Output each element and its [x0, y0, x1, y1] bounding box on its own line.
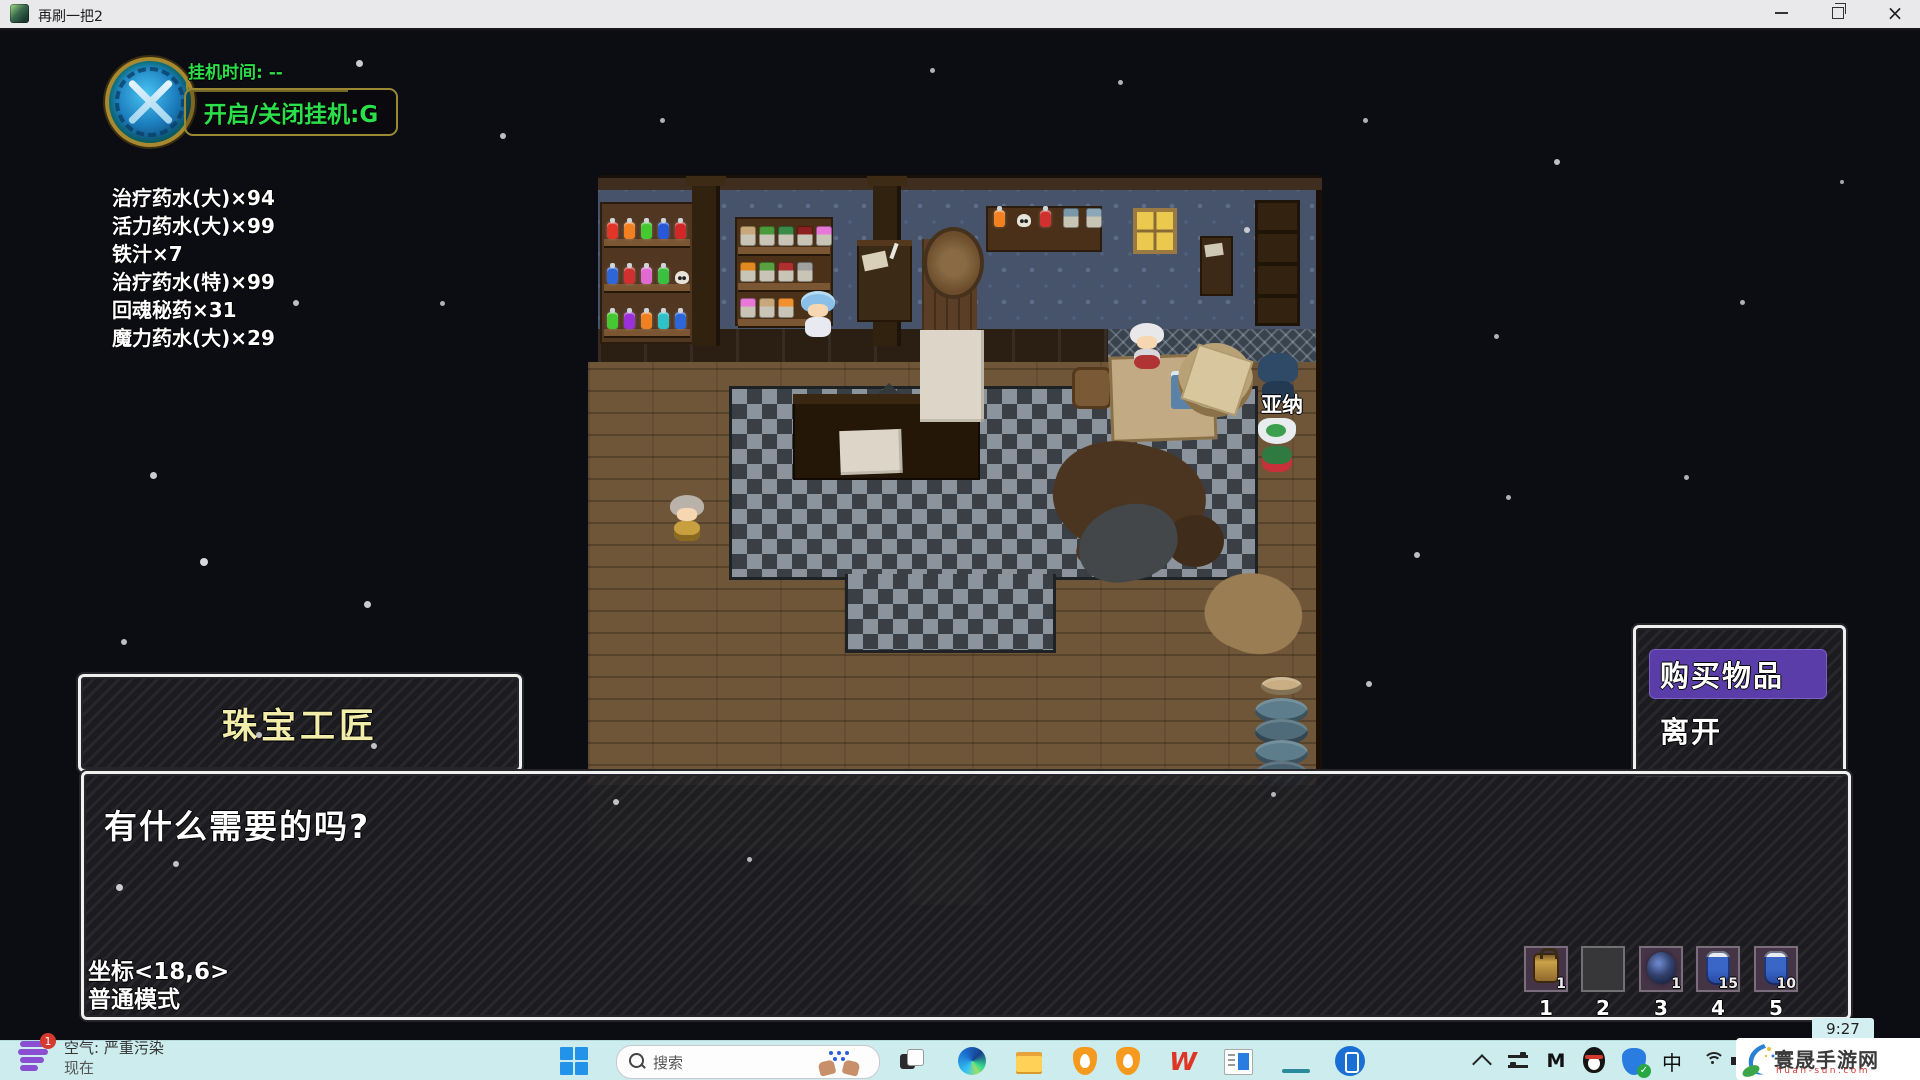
- npc-shopkeeper[interactable]: [798, 291, 838, 343]
- snow-particle: [660, 118, 665, 123]
- jar-item: [759, 226, 775, 246]
- mode-label: 普通模式: [88, 980, 180, 1014]
- snow-particle: [1684, 475, 1689, 480]
- search-highlight-image: [813, 1049, 869, 1075]
- potion-bottle: [994, 210, 1005, 227]
- shelf-board: [604, 329, 690, 336]
- weather-subline: 现在: [64, 1057, 94, 1078]
- item-count: 10: [1777, 976, 1796, 992]
- hotbar-slot-4[interactable]: 15: [1696, 946, 1740, 992]
- edge-browser-icon[interactable]: [956, 1046, 988, 1076]
- skull-item: [1017, 214, 1031, 227]
- afk-toggle-button[interactable]: 开启/关闭挂机:G: [184, 88, 398, 136]
- notification-badge: 1: [40, 1033, 56, 1049]
- snow-particle: [1554, 159, 1560, 165]
- afk-emblem-icon[interactable]: [105, 57, 195, 147]
- counter-cloth: [839, 429, 902, 475]
- yellow-window: [1133, 208, 1177, 254]
- snow-particle: [440, 301, 445, 306]
- close-button[interactable]: ×: [1872, 0, 1918, 26]
- snow-particle: [930, 68, 935, 73]
- start-button[interactable]: [560, 1047, 590, 1075]
- npc-body: [1134, 349, 1160, 369]
- shelf-top-right: [986, 206, 1102, 252]
- snow-particle: [1494, 334, 1499, 339]
- window-title: 再刷一把2: [38, 6, 103, 26]
- jar-item: [740, 262, 756, 282]
- npc-whitehair[interactable]: [1127, 323, 1167, 375]
- inventory-item: 回魂秘药×31: [112, 296, 275, 324]
- potion-bottle: [658, 267, 669, 284]
- carpet-extension: [845, 574, 1056, 653]
- hotbar-key: 1: [1524, 996, 1568, 1020]
- wps-letter: W: [1169, 1047, 1195, 1076]
- snow-particle: [1244, 227, 1250, 233]
- snow-particle: [364, 601, 371, 608]
- npc-body: [805, 317, 831, 337]
- task-view-icon[interactable]: [897, 1046, 929, 1076]
- npc-hair-green: [1266, 424, 1286, 437]
- pillar: [692, 184, 720, 346]
- shelf-board: [738, 247, 830, 254]
- npc-green-warrior[interactable]: [1256, 418, 1296, 488]
- cabinet: [1255, 200, 1300, 326]
- search-box[interactable]: 搜索: [616, 1045, 880, 1079]
- jar-item: [740, 298, 756, 318]
- jar-item: [778, 298, 794, 318]
- snow-particle: [256, 732, 262, 738]
- choice-leave[interactable]: 离开: [1650, 706, 1826, 754]
- snow-particle: [500, 133, 506, 139]
- hotbar-slot-3[interactable]: 1: [1639, 946, 1683, 992]
- npc-body: [1262, 446, 1292, 472]
- potion-bottle: [624, 222, 635, 239]
- player-body: [674, 521, 700, 541]
- potion-bottle: [607, 267, 618, 284]
- m-tray-icon[interactable]: M: [1540, 1046, 1572, 1076]
- player-character[interactable]: [667, 495, 707, 547]
- stool: [1072, 367, 1112, 409]
- jar-item: [1063, 208, 1079, 228]
- potion-bottle: [607, 222, 618, 239]
- inventory-item: 魔力药水(大)×29: [112, 324, 275, 352]
- snow-particle: [1740, 300, 1745, 305]
- shelf-board: [738, 283, 830, 290]
- security-tray-icon[interactable]: [1618, 1046, 1650, 1076]
- window-titlebar: 再刷一把2 ×: [0, 0, 1920, 30]
- hotbar-key: 3: [1639, 996, 1683, 1020]
- inventory-item: 活力药水(大)×99: [112, 212, 275, 240]
- potion-bottle: [641, 222, 652, 239]
- active-app-indicator: [1282, 1069, 1310, 1073]
- minimize-button[interactable]: [1758, 0, 1804, 26]
- restore-icon: [1832, 7, 1844, 19]
- jar-item: [740, 226, 756, 246]
- potion-bottle: [624, 312, 635, 329]
- potion-bottle: [641, 312, 652, 329]
- snow-particle: [121, 639, 127, 645]
- inventory-list: 治疗药水(大)×94 活力药水(大)×99 铁汁×7 治疗药水(特)×99 回魂…: [112, 184, 275, 352]
- snow-particle: [173, 861, 179, 867]
- watermark: 寰晟手游网 huan-sun.com: [1770, 1038, 1920, 1080]
- restore-button[interactable]: [1815, 0, 1861, 26]
- jar-item: [778, 262, 794, 282]
- hotbar-slot-1[interactable]: 1: [1524, 946, 1568, 992]
- chevron-up-icon: [1472, 1054, 1492, 1074]
- snow-particle: [613, 799, 619, 805]
- player-face: [677, 508, 697, 521]
- pillar-cap: [686, 176, 726, 186]
- weather-headline: 空气: 严重污染: [64, 1037, 164, 1058]
- jar-item: [797, 262, 813, 282]
- huorong-shield-icon[interactable]: [1069, 1046, 1101, 1076]
- pillar-cap: [867, 176, 907, 186]
- desktop: 再刷一把2 ×: [0, 0, 1920, 1080]
- wps-office-icon[interactable]: W: [1166, 1046, 1198, 1076]
- npc-hood: [1258, 353, 1298, 383]
- huorong-shield-icon-2[interactable]: [1112, 1046, 1144, 1076]
- potion-bottle: [675, 312, 686, 329]
- minimize-icon: [1775, 12, 1788, 14]
- snow-particle: [1366, 681, 1372, 687]
- jar-item: [1086, 208, 1102, 228]
- shield-check-icon: [1622, 1048, 1646, 1075]
- potion-bottle: [624, 267, 635, 284]
- reader-window: [1224, 1049, 1253, 1075]
- hotbar-key: 2: [1581, 996, 1625, 1020]
- small-shelf: [1200, 236, 1233, 296]
- hotbar-key: 5: [1754, 996, 1798, 1020]
- jar-item: [778, 226, 794, 246]
- weather-widget[interactable]: 1 空气: 严重污染 现在: [14, 1035, 234, 1080]
- snow-particle: [1840, 180, 1844, 184]
- pot: [1261, 677, 1302, 695]
- close-icon: ×: [1887, 3, 1904, 23]
- qq-tray-icon[interactable]: [1578, 1046, 1610, 1076]
- potion-bottle: [1040, 210, 1051, 227]
- shield-flame: [1073, 1047, 1097, 1075]
- search-icon: [629, 1053, 644, 1068]
- dialog-message: 有什么需要的吗?: [104, 800, 370, 848]
- tray-expand-chevron[interactable]: [1466, 1046, 1498, 1076]
- ime-indicator[interactable]: 中: [1656, 1046, 1688, 1076]
- mixer-tray-icon[interactable]: [1502, 1046, 1534, 1076]
- potion-bottle: [641, 267, 652, 284]
- snow-particle: [200, 558, 208, 566]
- item-hotbar: 1 1 15 10 1 2 3 4 5: [1524, 946, 1814, 1024]
- potion-shelf-left: [600, 202, 694, 344]
- inventory-item: 铁汁×7: [112, 240, 275, 268]
- hanging-cloth: [920, 330, 984, 422]
- snow-particle: [1118, 80, 1123, 85]
- m-logo: M: [1547, 1050, 1566, 1072]
- wall-post: [1316, 190, 1322, 788]
- snow-particle: [150, 472, 157, 479]
- hotbar-slot-2[interactable]: [1581, 946, 1625, 992]
- app-icon: [10, 4, 29, 23]
- hotbar-key: 4: [1696, 996, 1740, 1020]
- snow-particle: [1363, 118, 1368, 123]
- snow-particle: [356, 60, 363, 67]
- speaker-name-box: 珠宝工匠: [78, 674, 522, 772]
- choice-menu: 购买物品 离开: [1633, 625, 1846, 777]
- shelf-board: [604, 239, 690, 246]
- lantern-item-icon: [1533, 953, 1559, 983]
- item-count: 15: [1719, 976, 1738, 992]
- snow-particle: [116, 884, 123, 891]
- npc-face: [808, 304, 828, 317]
- edge-logo: [958, 1047, 986, 1075]
- document-reader-icon[interactable]: [1222, 1046, 1254, 1076]
- hotbar-slot-5[interactable]: 10: [1754, 946, 1798, 992]
- folder-front: [1016, 1056, 1042, 1072]
- snow-particle: [747, 857, 752, 862]
- npc-name-label: 亚纳: [1257, 389, 1307, 419]
- snow-particle: [293, 300, 299, 306]
- taskbar: 1 空气: 严重污染 现在 搜索 W: [0, 1040, 1920, 1080]
- shield-flame: [1116, 1047, 1140, 1075]
- jar-item: [797, 226, 813, 246]
- potion-bottle: [658, 222, 669, 239]
- item-count: 1: [1556, 976, 1566, 992]
- snow-particle: [1414, 552, 1420, 558]
- phone-logo: [1335, 1046, 1365, 1076]
- qq-penguin-icon: [1581, 1047, 1607, 1075]
- choice-buy-items[interactable]: 购买物品: [1650, 650, 1826, 698]
- clock[interactable]: 9:27: [1812, 1018, 1874, 1040]
- inventory-item: 治疗药水(特)×99: [112, 268, 275, 296]
- jar-item: [759, 298, 775, 318]
- phone-link-icon[interactable]: [1334, 1046, 1366, 1076]
- potion-bottle: [675, 222, 686, 239]
- potion-bottle: [607, 312, 618, 329]
- task-view-front: [907, 1049, 924, 1066]
- jar-item: [816, 226, 832, 246]
- jar-item: [759, 262, 775, 282]
- ime-label: 中: [1662, 1047, 1682, 1076]
- barrel-top: [923, 227, 984, 299]
- snow-particle: [1506, 495, 1511, 500]
- shelf-board: [604, 284, 690, 291]
- npc-face: [1137, 336, 1157, 349]
- skull-item: [675, 271, 689, 284]
- potion-bottle: [658, 312, 669, 329]
- watermark-site-url: huan-sun.com: [1776, 1066, 1870, 1076]
- file-explorer-icon[interactable]: [1013, 1046, 1045, 1076]
- inventory-item: 治疗药水(大)×94: [112, 184, 275, 212]
- snow-particle: [371, 743, 377, 749]
- item-count: 1: [1671, 976, 1681, 992]
- search-placeholder: 搜索: [653, 1052, 683, 1073]
- snow-particle: [1271, 792, 1276, 797]
- speaker-name: 珠宝工匠: [222, 698, 378, 749]
- wifi-icon: [1703, 1052, 1725, 1070]
